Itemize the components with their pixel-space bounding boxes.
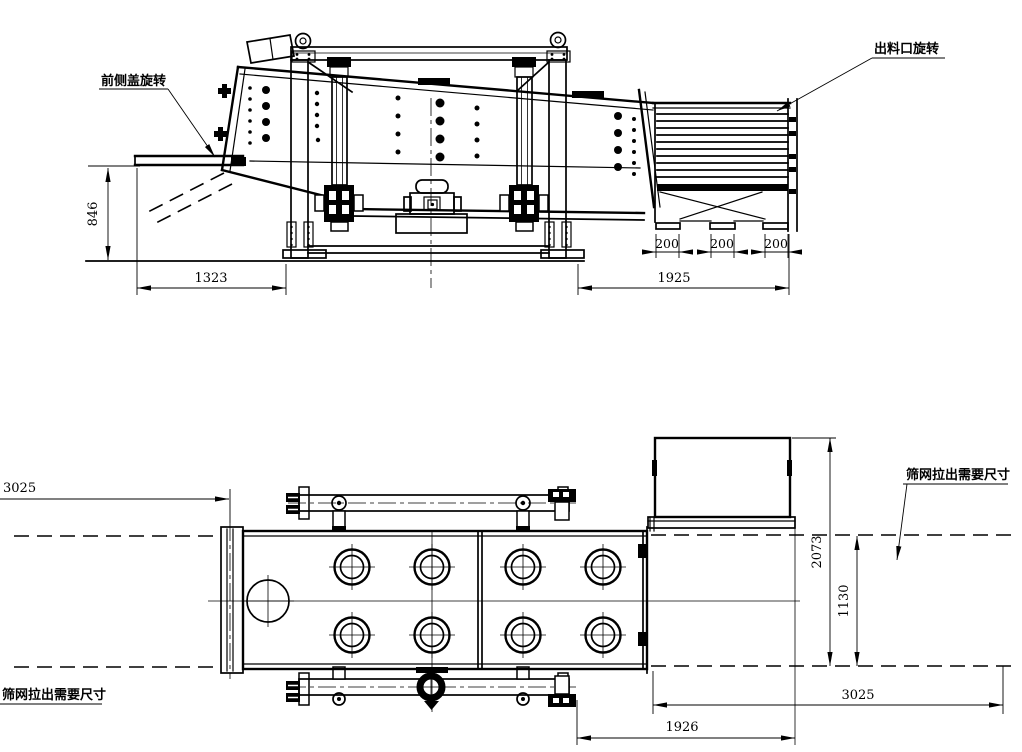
discharge-hopper-plan [648,438,795,745]
label-front-cover-rotation: 前侧盖旋转 [99,73,215,157]
feed-inlet-port [242,575,294,627]
dim-cover-height-846: 846 [86,166,140,260]
dim-846-text: 846 [86,202,101,227]
dim-3025-right-text: 3025 [841,688,874,703]
dim-200-text-3: 200 [764,236,788,251]
dim-feed-span-1323: 1323 [137,168,286,295]
dim-rear-length-1926: 1926 [577,700,795,745]
louver-slats [657,114,788,191]
dim-1925-text: 1925 [657,271,690,286]
dim-pullout-left-3025: 3025 [0,481,230,523]
dim-1130-text: 1130 [837,584,852,617]
discharge-louver-box [653,99,797,231]
top-clamp-tab [418,78,450,85]
cover-rotated-position [156,184,232,223]
dim-3025-left-text: 3025 [3,481,36,496]
dim-overall-2073: 2073 [792,438,836,666]
discharge-outlet-rotation-text: 出料口旋转 [874,41,939,57]
dim-pullout-right-3025: 3025 [653,666,1003,714]
dim-1323-text: 1323 [194,271,227,286]
plan-view: 3025 2073 1130 3025 1926 筛网拉出需要尺寸 [0,438,1012,745]
dim-body-width-1130: 1130 [837,536,857,666]
vibrating-screen-drawing: 846 1323 1925 200 200 200 [0,0,1022,752]
suspension-spring-right [500,57,548,231]
frame-rail-top [286,487,580,532]
screen-pullout-right-text: 筛网拉出需要尺寸 [906,467,1010,483]
motor-plan [420,676,442,710]
dim-200-text-1: 200 [655,236,679,251]
label-screen-pullout-right: 筛网拉出需要尺寸 [897,467,1010,560]
dim-2073-text: 2073 [810,535,825,568]
label-screen-pullout-left: 筛网拉出需要尺寸 [0,687,106,704]
front-cover-rotation-text: 前侧盖旋转 [101,73,166,89]
front-cover-open [135,156,246,223]
dim-200-text-2: 200 [710,236,734,251]
top-clamp-tab [572,91,604,98]
dim-1926-text: 1926 [665,720,698,735]
feed-inlet-box [247,35,294,63]
engineering-drawing-canvas: 846 1323 1925 200 200 200 [0,0,1022,752]
frame-rail-bottom [286,667,580,710]
discharge-chutes [656,192,788,229]
cover-rotated-position [148,173,224,212]
side-view: 846 1323 1925 200 200 200 [86,33,945,296]
label-discharge-outlet-rotation: 出料口旋转 [777,41,945,111]
screen-pullout-left-text: 筛网拉出需要尺寸 [2,687,106,703]
dim-discharge-span-1925: 1925 [578,234,789,295]
dim-chute-widths-200: 200 200 200 [642,234,802,258]
vibration-motor [396,98,467,288]
